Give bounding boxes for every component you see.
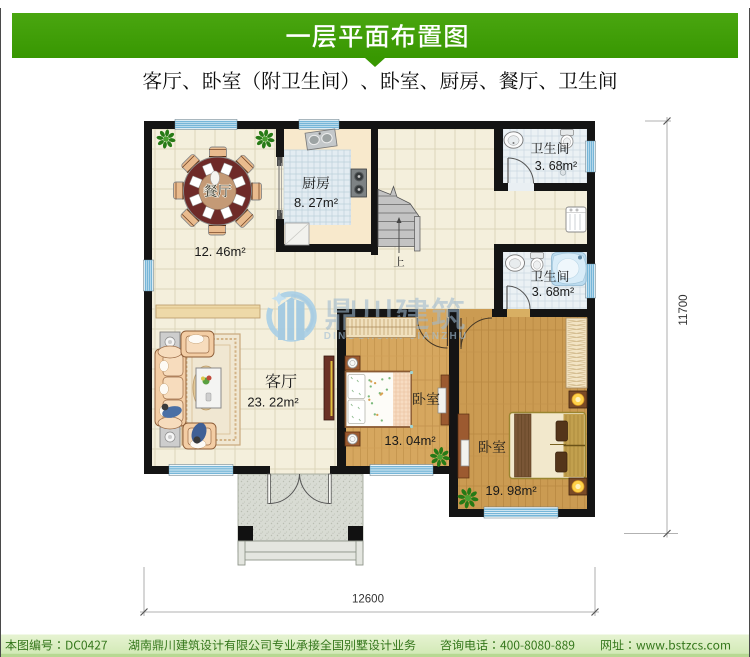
svg-text:3. 68m²: 3. 68m² <box>532 285 574 299</box>
svg-text:19. 98m²: 19. 98m² <box>485 483 537 498</box>
svg-text:3. 68m²: 3. 68m² <box>535 159 577 173</box>
svg-text:12. 46m²: 12. 46m² <box>194 244 246 259</box>
svg-text:8. 27m²: 8. 27m² <box>294 195 339 210</box>
svg-text:11700: 11700 <box>678 294 690 325</box>
svg-text:13. 04m²: 13. 04m² <box>384 433 436 448</box>
svg-text:12600: 12600 <box>352 594 384 606</box>
svg-text:23. 22m²: 23. 22m² <box>247 395 299 410</box>
